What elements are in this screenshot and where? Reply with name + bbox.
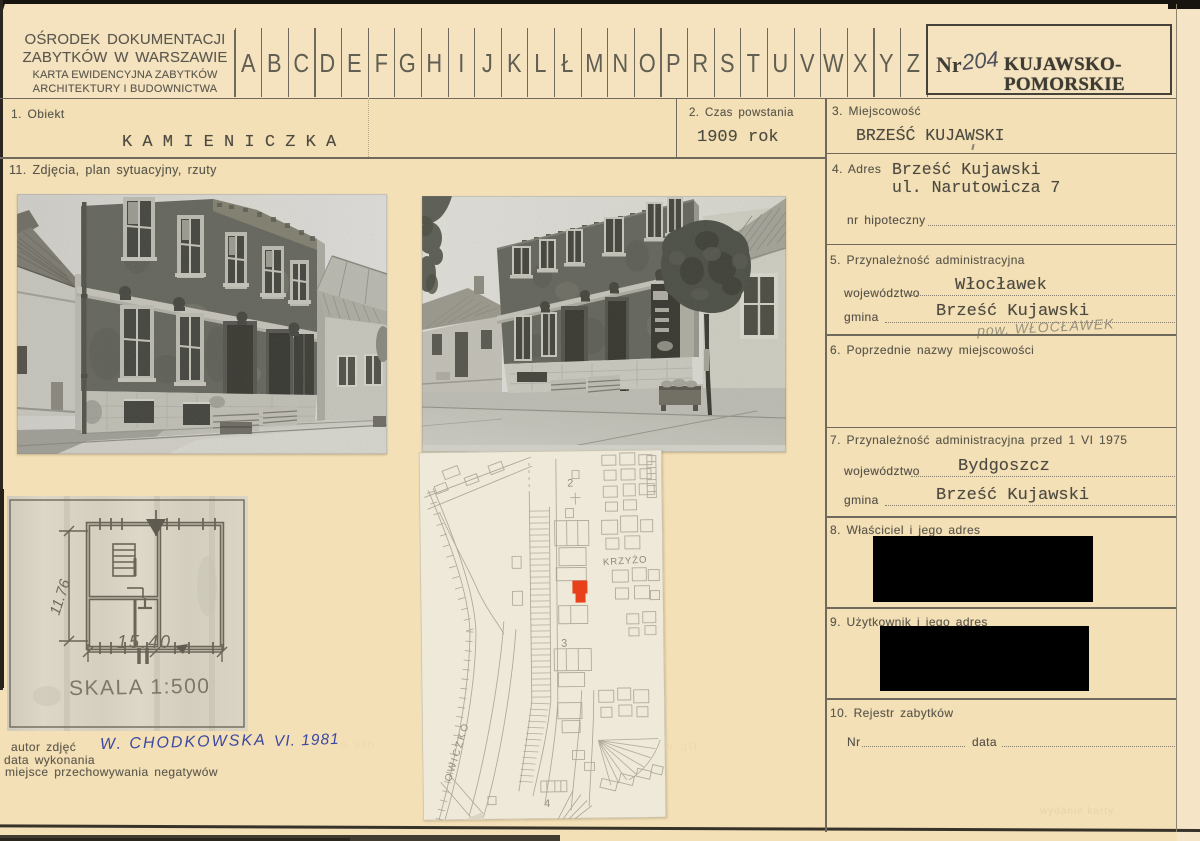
svg-text:15.40: 15.40 xyxy=(117,632,172,652)
svg-text:3: 3 xyxy=(561,638,567,650)
svg-text:4: 4 xyxy=(544,798,550,810)
svg-text:SKALA 1:500: SKALA 1:500 xyxy=(69,675,211,700)
svg-text:2: 2 xyxy=(567,478,573,490)
